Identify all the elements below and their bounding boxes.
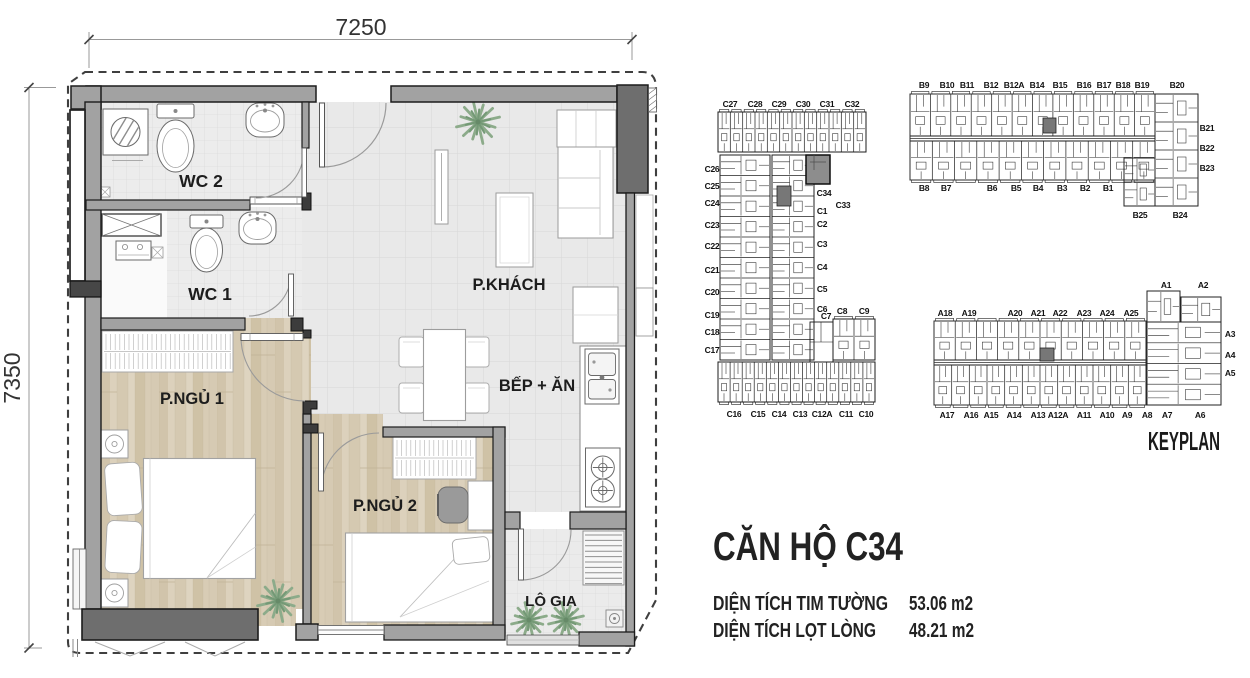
svg-text:DIỆN TÍCH LỌT LÒNG: DIỆN TÍCH LỌT LÒNG: [713, 618, 876, 642]
svg-text:C15: C15: [751, 409, 766, 419]
svg-text:C25: C25: [705, 181, 720, 191]
svg-text:C5: C5: [817, 284, 828, 294]
svg-text:B12A: B12A: [1004, 80, 1025, 90]
svg-text:C30: C30: [796, 99, 811, 109]
svg-text:WC 2: WC 2: [179, 171, 223, 191]
svg-text:A13: A13: [1031, 410, 1046, 420]
svg-text:B23: B23: [1200, 163, 1215, 173]
svg-text:C11: C11: [839, 409, 854, 419]
svg-text:B18: B18: [1116, 80, 1131, 90]
svg-text:B12: B12: [984, 80, 999, 90]
svg-text:A11: A11: [1077, 410, 1092, 420]
svg-text:C18: C18: [705, 327, 720, 337]
svg-text:C22: C22: [705, 241, 720, 251]
svg-text:B3: B3: [1057, 183, 1068, 193]
svg-text:B2: B2: [1080, 183, 1091, 193]
svg-text:B15: B15: [1053, 80, 1068, 90]
svg-text:B19: B19: [1135, 80, 1150, 90]
svg-text:C12A: C12A: [812, 409, 833, 419]
svg-text:C14: C14: [772, 409, 787, 419]
svg-text:A14: A14: [1007, 410, 1022, 420]
svg-text:LÔ GIA: LÔ GIA: [525, 592, 577, 610]
svg-text:A20: A20: [1008, 308, 1023, 318]
svg-text:A22: A22: [1053, 308, 1068, 318]
svg-text:BẾP + ĂN: BẾP + ĂN: [499, 376, 575, 395]
svg-text:C13: C13: [793, 409, 808, 419]
svg-text:A21: A21: [1031, 308, 1046, 318]
svg-text:A25: A25: [1124, 308, 1139, 318]
svg-text:C8: C8: [837, 306, 848, 316]
svg-text:C28: C28: [748, 99, 763, 109]
svg-text:C16: C16: [727, 409, 742, 419]
svg-text:A24: A24: [1100, 308, 1115, 318]
svg-text:B6: B6: [987, 183, 998, 193]
svg-text:A5: A5: [1225, 368, 1236, 378]
svg-text:C9: C9: [859, 306, 870, 316]
svg-text:A4: A4: [1225, 350, 1236, 360]
svg-text:C34: C34: [817, 188, 832, 198]
svg-text:B14: B14: [1030, 80, 1045, 90]
svg-text:A16: A16: [964, 410, 979, 420]
svg-text:A12A: A12A: [1048, 410, 1069, 420]
svg-text:P.NGỦ 2: P.NGỦ 2: [353, 496, 417, 515]
svg-text:CĂN HỘ C34: CĂN HỘ C34: [713, 523, 904, 569]
svg-text:B4: B4: [1033, 183, 1044, 193]
svg-text:C26: C26: [705, 164, 720, 174]
svg-text:B8: B8: [919, 183, 930, 193]
svg-text:B20: B20: [1170, 80, 1185, 90]
svg-text:KEYPLAN: KEYPLAN: [1148, 426, 1220, 456]
svg-text:A23: A23: [1077, 308, 1092, 318]
svg-text:C7: C7: [821, 311, 832, 321]
svg-text:C20: C20: [705, 287, 720, 297]
svg-text:B16: B16: [1077, 80, 1092, 90]
svg-text:7350: 7350: [0, 352, 25, 403]
svg-text:B22: B22: [1200, 143, 1215, 153]
svg-text:A9: A9: [1122, 410, 1133, 420]
svg-text:DIỆN TÍCH TIM TƯỜNG: DIỆN TÍCH TIM TƯỜNG: [713, 591, 888, 615]
svg-text:C23: C23: [705, 220, 720, 230]
svg-text:C31: C31: [820, 99, 835, 109]
svg-text:C3: C3: [817, 239, 828, 249]
svg-text:B7: B7: [941, 183, 952, 193]
svg-text:P.KHÁCH: P.KHÁCH: [472, 275, 545, 294]
svg-text:A10: A10: [1100, 410, 1115, 420]
svg-text:C29: C29: [772, 99, 787, 109]
svg-text:B1: B1: [1103, 183, 1114, 193]
svg-text:A15: A15: [984, 410, 999, 420]
svg-text:A3: A3: [1225, 329, 1236, 339]
svg-text:B9: B9: [919, 80, 930, 90]
svg-text:B21: B21: [1200, 123, 1215, 133]
svg-text:B5: B5: [1011, 183, 1022, 193]
svg-text:7250: 7250: [335, 14, 386, 40]
svg-text:A19: A19: [962, 308, 977, 318]
svg-text:C19: C19: [705, 310, 720, 320]
svg-text:WC 1: WC 1: [188, 284, 232, 304]
svg-text:C32: C32: [845, 99, 860, 109]
svg-text:48.21 m2: 48.21 m2: [909, 620, 974, 642]
svg-text:A2: A2: [1198, 280, 1209, 290]
svg-text:P.NGỦ 1: P.NGỦ 1: [160, 389, 224, 408]
svg-text:C24: C24: [705, 198, 720, 208]
svg-text:C4: C4: [817, 262, 828, 272]
svg-text:C17: C17: [705, 345, 720, 355]
svg-text:53.06 m2: 53.06 m2: [909, 593, 973, 615]
svg-text:A7: A7: [1162, 410, 1173, 420]
svg-text:C10: C10: [859, 409, 874, 419]
svg-text:C33: C33: [836, 200, 851, 210]
svg-text:A8: A8: [1142, 410, 1153, 420]
svg-text:A18: A18: [938, 308, 953, 318]
svg-text:A17: A17: [940, 410, 955, 420]
svg-text:B10: B10: [940, 80, 955, 90]
svg-text:A1: A1: [1161, 280, 1172, 290]
svg-text:C2: C2: [817, 219, 828, 229]
svg-text:A6: A6: [1195, 410, 1206, 420]
svg-text:B24: B24: [1173, 210, 1188, 220]
svg-text:B11: B11: [960, 80, 975, 90]
svg-text:B25: B25: [1133, 210, 1148, 220]
svg-text:C1: C1: [817, 206, 828, 216]
svg-text:C21: C21: [705, 265, 720, 275]
svg-text:B17: B17: [1097, 80, 1112, 90]
svg-text:C27: C27: [723, 99, 738, 109]
